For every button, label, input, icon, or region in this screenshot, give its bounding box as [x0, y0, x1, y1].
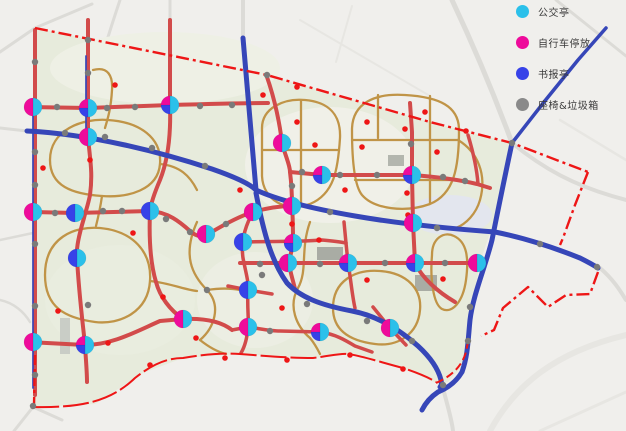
bus-kiosk-dot-icon [516, 5, 529, 18]
bicycle-parking-dot-icon [516, 36, 529, 49]
legend-label: 自行车停放 [538, 35, 591, 50]
legend-item-bus-kiosk: 公交亭 [516, 4, 620, 18]
bench-trashbin-dot-icon [516, 98, 529, 111]
site-plan-page: 公交亭 自行车停放 书报亭 座椅&垃圾箱 [0, 0, 626, 431]
news-kiosk-dot-icon [516, 67, 529, 80]
legend: 公交亭 自行车停放 书报亭 座椅&垃圾箱 [516, 4, 620, 128]
legend-label: 公交亭 [538, 4, 570, 19]
legend-item-news-kiosk: 书报亭 [516, 66, 620, 80]
legend-item-bench-trashbin: 座椅&垃圾箱 [516, 97, 620, 111]
legend-label: 书报亭 [538, 66, 570, 81]
legend-label: 座椅&垃圾箱 [538, 97, 599, 112]
legend-item-bicycle-parking: 自行车停放 [516, 35, 620, 49]
